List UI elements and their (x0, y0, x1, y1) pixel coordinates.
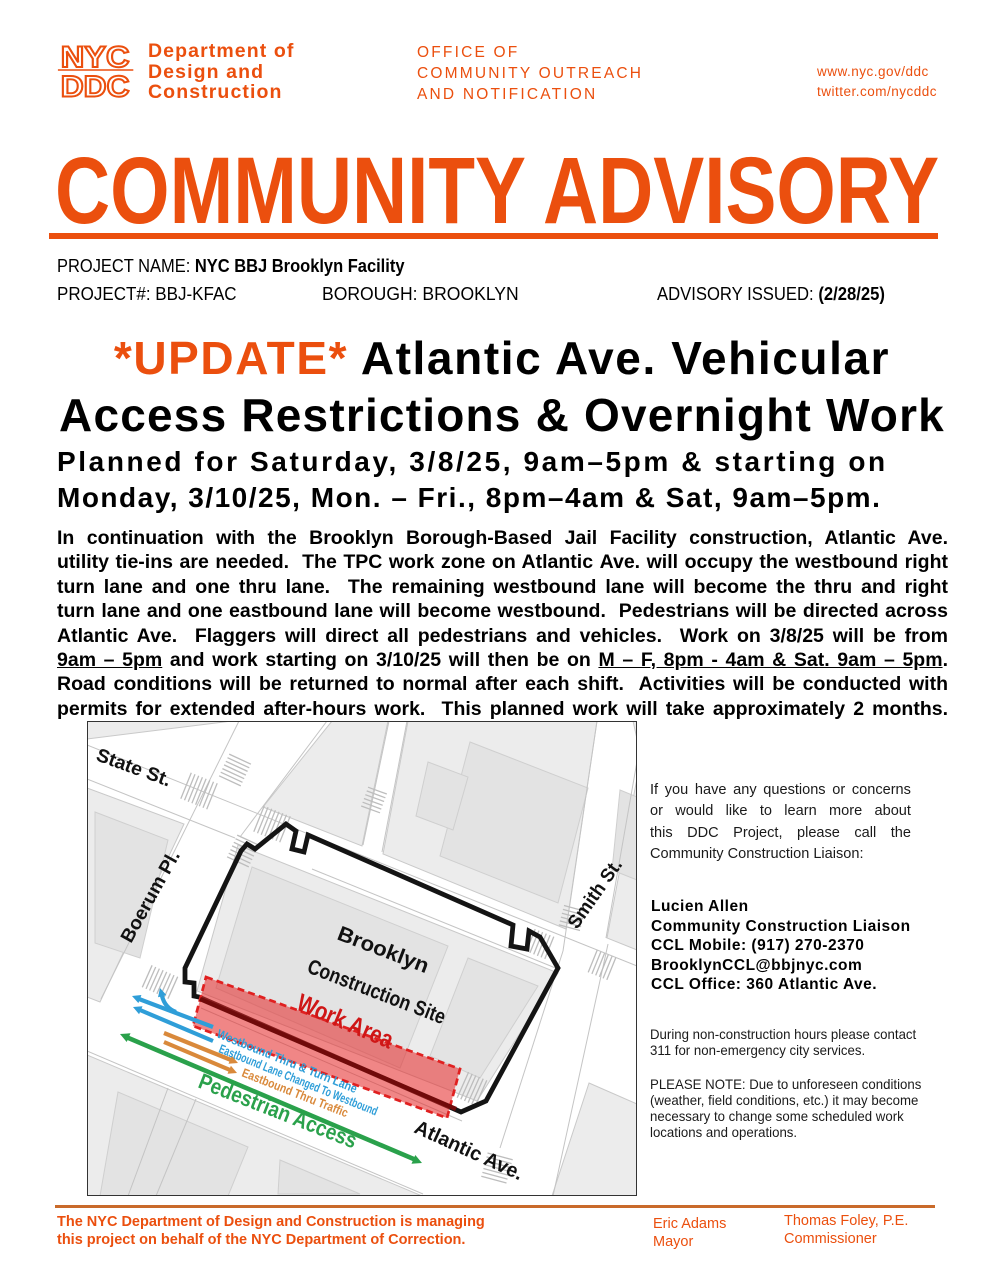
svg-text:NYC: NYC (61, 40, 130, 73)
svg-text:DDC: DDC (61, 70, 130, 101)
